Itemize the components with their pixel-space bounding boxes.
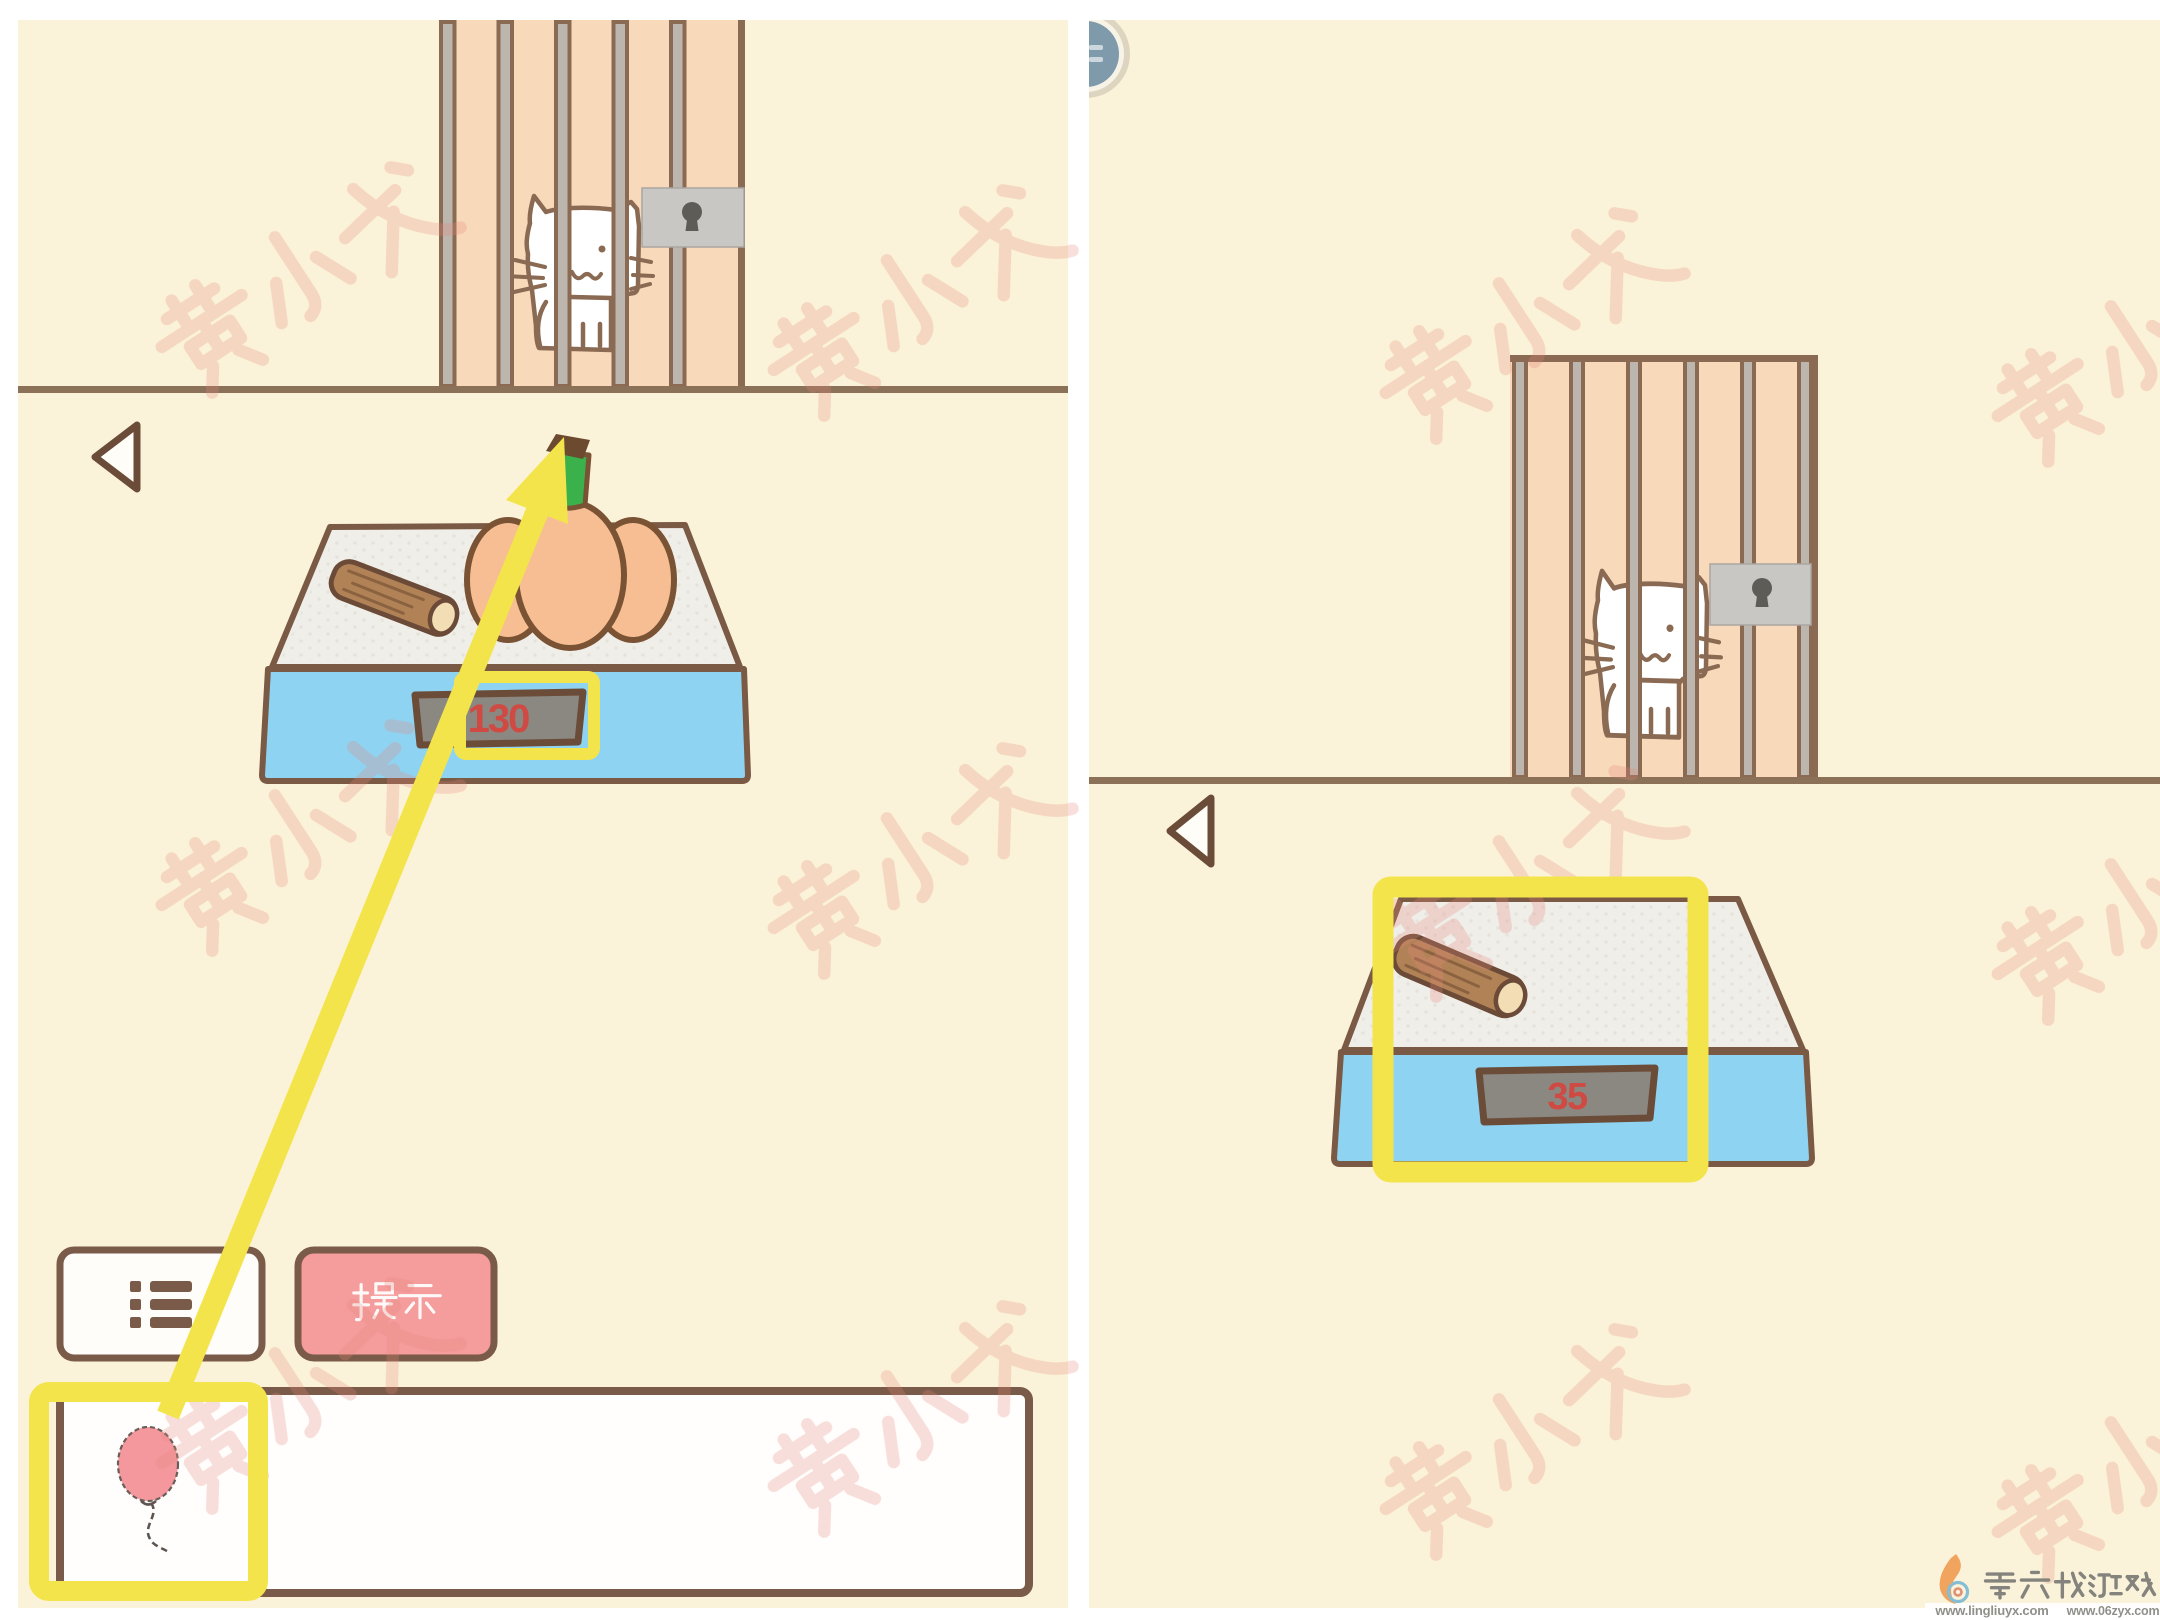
svg-text:www.lingliuyx.com: www.lingliuyx.com bbox=[1934, 1603, 2048, 1618]
svg-text:www.06zyx.com: www.06zyx.com bbox=[2066, 1604, 2160, 1618]
svg-text:130: 130 bbox=[468, 697, 529, 741]
svg-text:35: 35 bbox=[1547, 1076, 1588, 1118]
